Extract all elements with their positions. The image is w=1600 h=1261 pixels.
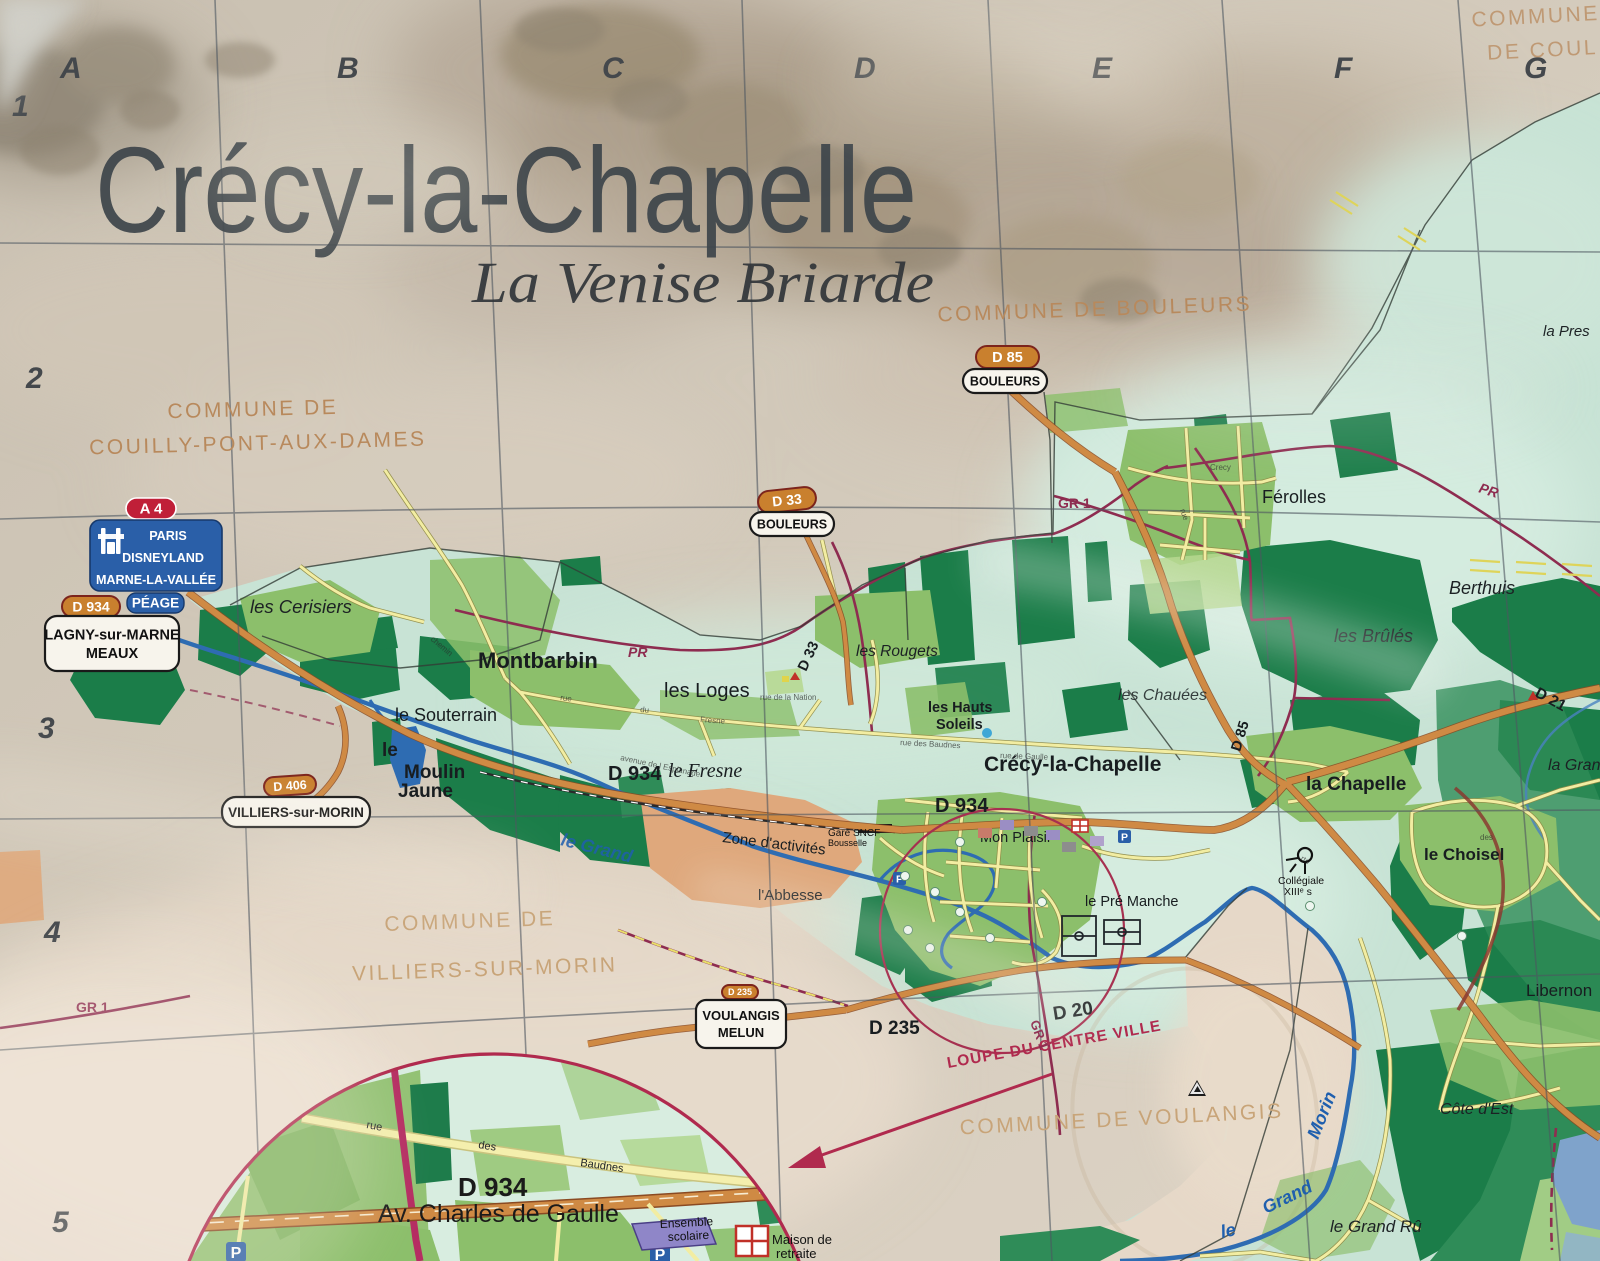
svg-text:XIIIᵉ s: XIIIᵉ s xyxy=(1284,886,1312,898)
svg-text:BOULEURS: BOULEURS xyxy=(757,518,827,532)
svg-text:VOULANGIS: VOULANGIS xyxy=(702,1008,780,1023)
svg-text:rue de Gaulle: rue de Gaulle xyxy=(1000,751,1049,762)
svg-text:la Pres: la Pres xyxy=(1543,323,1590,340)
svg-text:P: P xyxy=(1121,832,1128,844)
svg-text:les Chauées: les Chauées xyxy=(1118,687,1207,704)
svg-text:les Rougets: les Rougets xyxy=(856,643,938,660)
svg-text:GR 1: GR 1 xyxy=(1058,495,1091,511)
svg-text:F: F xyxy=(1334,52,1353,85)
svg-text:BOULEURS: BOULEURS xyxy=(970,375,1040,389)
svg-text:Libernon: Libernon xyxy=(1526,981,1592,1000)
svg-text:D 934: D 934 xyxy=(72,599,110,615)
svg-text:MEAUX: MEAUX xyxy=(86,646,139,662)
svg-text:La Venise Briarde: La Venise Briarde xyxy=(471,250,934,315)
svg-text:Maison de: Maison de xyxy=(772,1232,832,1247)
svg-text:LAGNY-sur-MARNE: LAGNY-sur-MARNE xyxy=(44,627,180,643)
svg-text:Côte d'Est: Côte d'Est xyxy=(1440,1101,1514,1118)
svg-text:D 33: D 33 xyxy=(771,491,802,510)
svg-text:la Chapelle: la Chapelle xyxy=(1306,774,1406,795)
svg-text:C: C xyxy=(602,52,625,85)
svg-text:Av. Charles de Gaulle: Av. Charles de Gaulle xyxy=(378,1200,619,1228)
svg-text:B: B xyxy=(337,52,359,85)
svg-text:rue de la Nation: rue de la Nation xyxy=(760,693,816,702)
svg-text:le Pré Manche: le Pré Manche xyxy=(1085,894,1179,910)
svg-text:Soleils: Soleils xyxy=(936,717,983,733)
svg-text:le Grand Rû: le Grand Rû xyxy=(1330,1217,1422,1236)
svg-text:COMMUNE DE: COMMUNE DE xyxy=(167,396,338,423)
svg-text:Montbarbin: Montbarbin xyxy=(478,648,598,673)
svg-text:du: du xyxy=(640,705,650,715)
svg-text:D 235: D 235 xyxy=(869,1018,920,1039)
svg-text:PÉAGE: PÉAGE xyxy=(132,596,179,611)
svg-text:D 934: D 934 xyxy=(935,795,989,817)
svg-text:DISNEYLAND: DISNEYLAND xyxy=(122,551,204,565)
svg-text:le Choisel: le Choisel xyxy=(1424,845,1504,864)
svg-text:D 934: D 934 xyxy=(458,1172,528,1202)
svg-text:PARIS: PARIS xyxy=(149,529,187,543)
svg-text:4: 4 xyxy=(43,916,61,949)
svg-text:Moulin: Moulin xyxy=(404,762,465,783)
svg-text:Férolles: Férolles xyxy=(1262,487,1326,507)
svg-text:Berthuis: Berthuis xyxy=(1449,578,1515,598)
svg-text:D 406: D 406 xyxy=(273,778,307,794)
svg-text:2: 2 xyxy=(25,362,43,395)
svg-text:MARNE-LA-VALLÉE: MARNE-LA-VALLÉE xyxy=(96,572,216,587)
svg-text:des: des xyxy=(1480,833,1493,842)
svg-text:3: 3 xyxy=(38,712,55,745)
svg-text:Jaune: Jaune xyxy=(398,781,453,802)
svg-text:D 235: D 235 xyxy=(728,987,752,997)
svg-text:Crecy: Crecy xyxy=(1210,463,1231,472)
svg-text:rue: rue xyxy=(560,693,573,704)
svg-text:D 85: D 85 xyxy=(992,350,1023,366)
svg-text:Fresne: Fresne xyxy=(700,715,726,726)
svg-text:A 4: A 4 xyxy=(140,501,163,518)
svg-text:1: 1 xyxy=(12,90,29,123)
svg-text:le Souterrain: le Souterrain xyxy=(395,705,497,725)
svg-text:les Loges: les Loges xyxy=(664,680,750,702)
svg-text:la Grand-C: la Grand-C xyxy=(1548,757,1600,774)
svg-text:les Cerisiers: les Cerisiers xyxy=(250,596,352,617)
svg-text:Bousselle: Bousselle xyxy=(828,838,867,848)
svg-text:retraite: retraite xyxy=(776,1246,816,1261)
svg-text:PR: PR xyxy=(628,644,648,660)
svg-text:scolaire: scolaire xyxy=(667,1228,709,1244)
svg-text:les Hauts: les Hauts xyxy=(928,700,992,716)
svg-text:MELUN: MELUN xyxy=(718,1025,764,1040)
svg-text:A: A xyxy=(59,52,82,85)
svg-text:le: le xyxy=(382,740,398,761)
